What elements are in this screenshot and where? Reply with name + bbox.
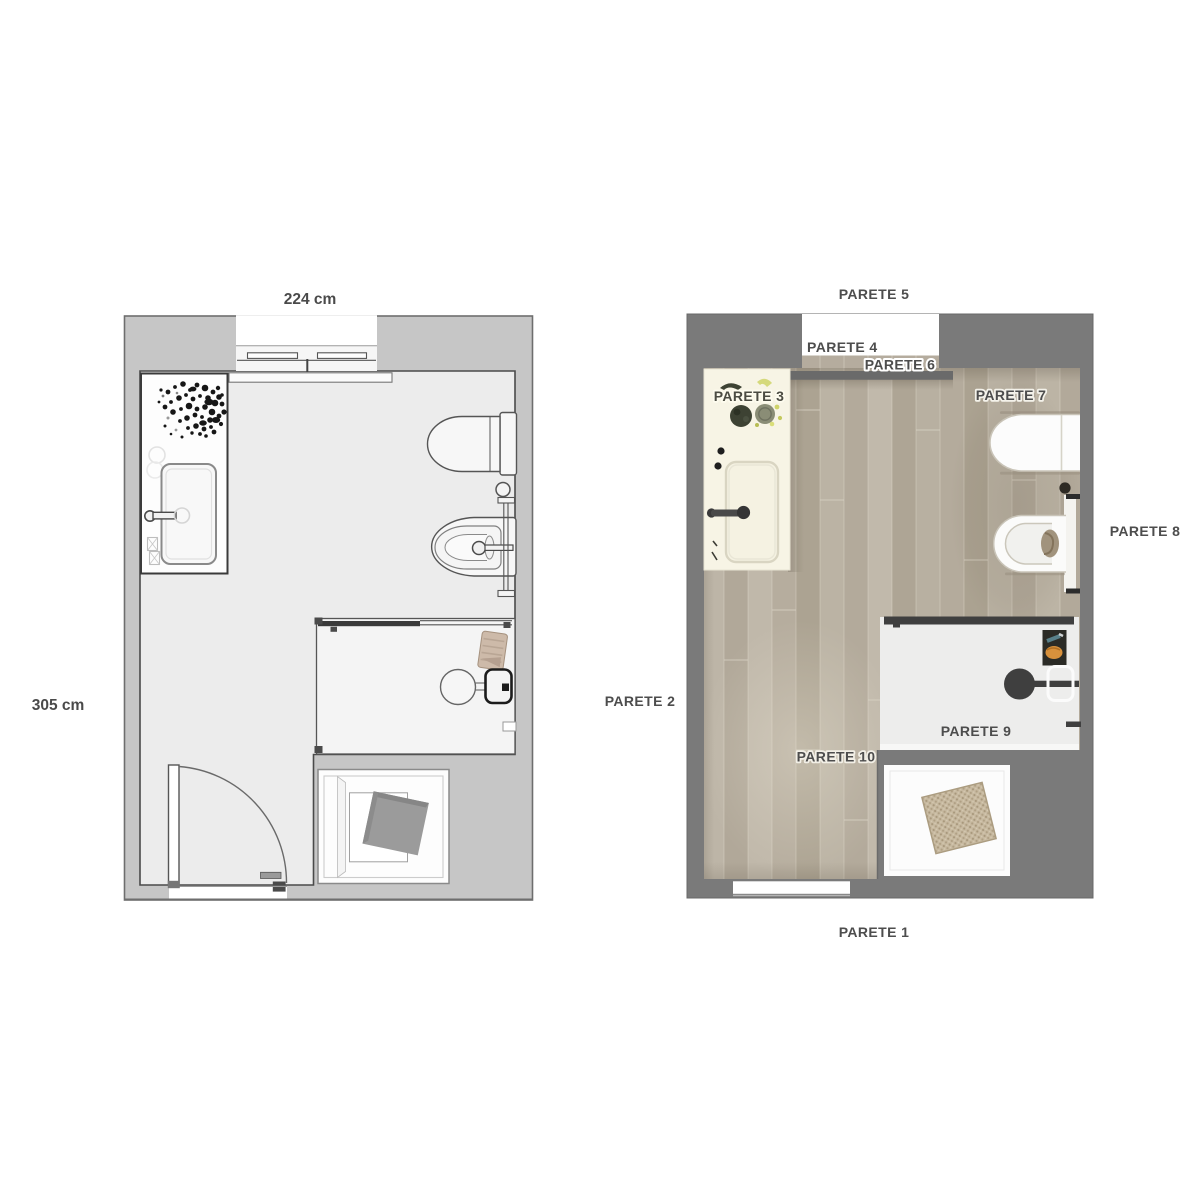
svg-text:224 cm: 224 cm bbox=[284, 291, 337, 308]
svg-text:PARETE 4: PARETE 4 bbox=[807, 339, 878, 355]
svg-text:PARETE 5: PARETE 5 bbox=[839, 286, 910, 302]
svg-text:PARETE 2: PARETE 2 bbox=[605, 693, 676, 709]
svg-text:305 cm: 305 cm bbox=[32, 697, 85, 714]
svg-text:PARETE 8: PARETE 8 bbox=[1110, 523, 1181, 539]
svg-text:PARETE 10: PARETE 10 bbox=[797, 749, 876, 765]
svg-text:PARETE 7: PARETE 7 bbox=[976, 387, 1047, 403]
svg-text:PARETE 9: PARETE 9 bbox=[941, 723, 1012, 739]
svg-text:PARETE 6: PARETE 6 bbox=[865, 357, 936, 373]
svg-text:PARETE 3: PARETE 3 bbox=[714, 388, 785, 404]
svg-text:PARETE 1: PARETE 1 bbox=[839, 924, 910, 940]
